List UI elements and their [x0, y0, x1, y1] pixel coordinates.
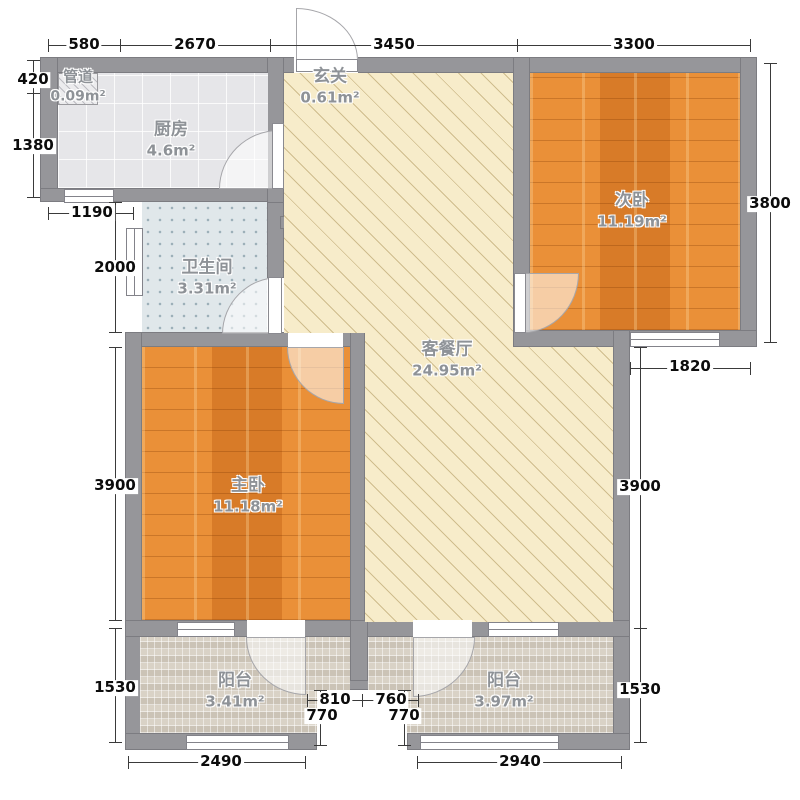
balcony-right-label: 阳台 3.97m²: [474, 666, 533, 711]
balcony-left-label: 阳台 3.41m²: [205, 666, 264, 711]
dim-left-420: 420: [15, 72, 50, 88]
bathroom-label: 卫生间 3.31m²: [177, 253, 236, 298]
bathroom-door-leaf: [268, 277, 282, 334]
dim-top-3300: 3300: [611, 37, 657, 53]
dim-bottom-2490: 2490: [198, 754, 244, 770]
wall-bedroom1-east: [350, 332, 365, 637]
balcony-right-window: [420, 735, 559, 750]
dim-top-580: 580: [66, 37, 101, 53]
bedroom2-label: 次卧 11.19m²: [597, 186, 667, 231]
dim-bottom-2940: 2940: [497, 754, 543, 770]
bedroom2-window: [630, 332, 720, 347]
kitchen-window: [64, 189, 114, 203]
bedroom1-window: [177, 622, 235, 637]
dim-notch-770-left: 770: [304, 708, 339, 724]
entry-label: 玄关 0.61m²: [300, 62, 359, 107]
kitchen-door-leaf: [272, 123, 284, 189]
kitchen-label: 厨房 4.6m²: [147, 115, 196, 160]
dim-notch-770-right: 770: [386, 708, 421, 724]
bedroom1-label: 主卧 11.18m²: [213, 471, 283, 516]
bedroom1-door-opening: [288, 333, 343, 347]
bedroom1-balcony-door-opening: [247, 620, 305, 637]
duct-label: 管道 0.09m²: [50, 66, 105, 105]
dim-left-1190: 1190: [69, 205, 115, 221]
balcony-left-window: [186, 735, 289, 750]
dim-left-3900: 3900: [92, 478, 138, 494]
dim-right-1820: 1820: [667, 359, 713, 375]
entry-door-arc: [296, 8, 358, 60]
dim-right-3900: 3900: [617, 479, 663, 495]
dim-right-3800: 3800: [747, 196, 793, 212]
floor-plan: 580 2670 3450 3300 420 1380 1190 2000 39…: [0, 0, 800, 800]
dim-right-1530: 1530: [617, 682, 663, 698]
dim-left-1380: 1380: [10, 138, 56, 154]
wall-bathroom-east: [267, 202, 284, 278]
bedroom2-door-leaf: [514, 273, 526, 333]
dim-left-1530: 1530: [92, 680, 138, 696]
living-south-window: [488, 622, 559, 637]
living-label: 客餐厅 24.95m²: [412, 335, 482, 380]
wall-top: [40, 57, 757, 73]
dim-top-3450: 3450: [371, 37, 417, 53]
wall-balcony-divider: [350, 620, 368, 688]
dim-left-2000: 2000: [92, 260, 138, 276]
living-balcony-door-opening: [413, 620, 472, 637]
dim-top-2670: 2670: [172, 37, 218, 53]
